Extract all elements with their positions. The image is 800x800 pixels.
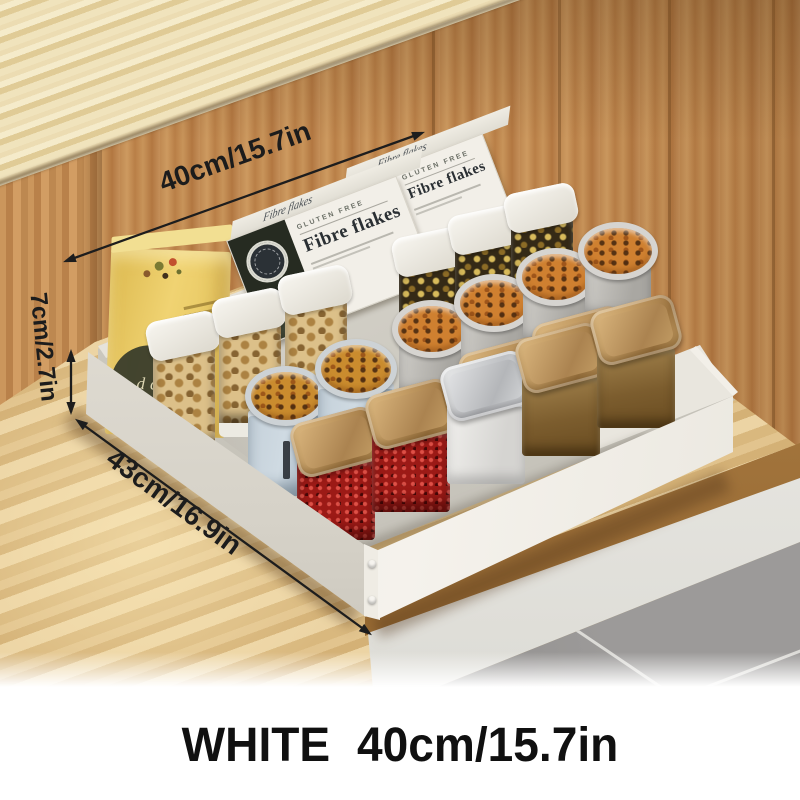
caption-size: 40cm/15.7in (357, 718, 618, 773)
caption: WHITE 40cm/15.7in (16, 690, 784, 800)
caption-color-name: WHITE (182, 718, 330, 773)
product-card: dc Fibre flakes GLUTEN FREE Fibre flakes… (0, 0, 800, 800)
product-photo: dc Fibre flakes GLUTEN FREE Fibre flakes… (0, 0, 800, 690)
dimension-arrows-icon (0, 0, 800, 690)
